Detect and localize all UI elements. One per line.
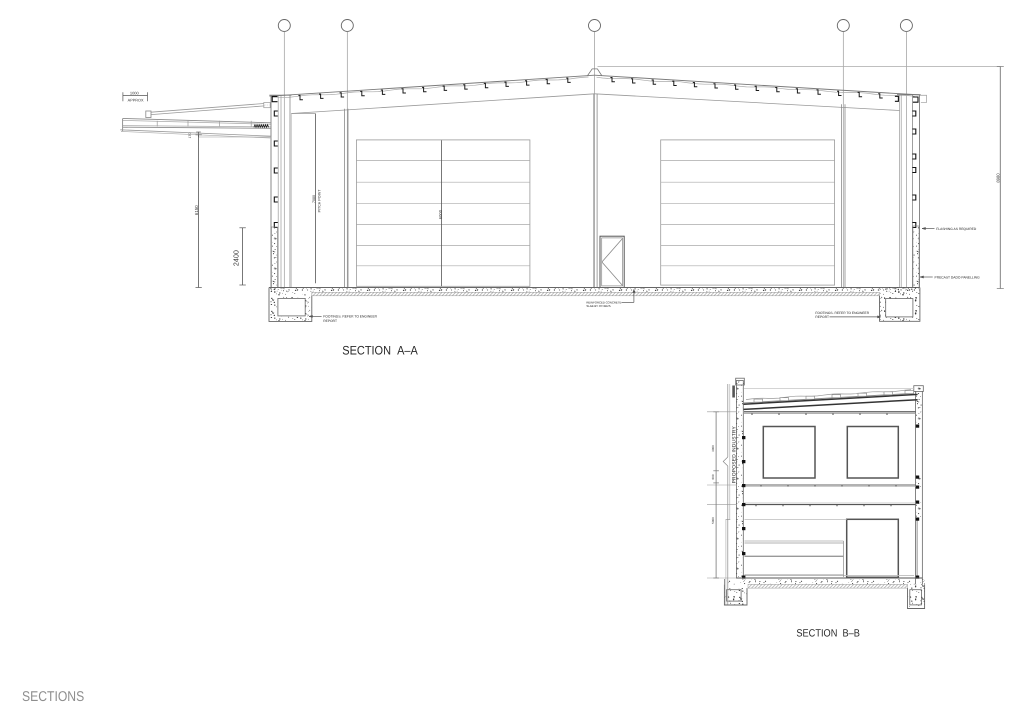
svg-text:3000: 3000 xyxy=(711,445,715,452)
svg-text:6000: 6000 xyxy=(438,209,443,219)
svg-text:1000: 1000 xyxy=(130,91,140,96)
svg-text:170: 170 xyxy=(188,133,192,139)
svg-text:7080: 7080 xyxy=(312,195,316,203)
svg-text:SECTION B–B: SECTION B–B xyxy=(796,628,860,640)
svg-text:2400: 2400 xyxy=(232,250,241,266)
svg-text:5000: 5000 xyxy=(711,517,715,524)
svg-text:SLAB BY OTHERS.: SLAB BY OTHERS. xyxy=(586,304,611,308)
svg-text:SECTION A–A: SECTION A–A xyxy=(342,344,418,358)
svg-text:PROPOSED INDUSTRY: PROPOSED INDUSTRY xyxy=(731,425,737,483)
svg-text:REPORT: REPORT xyxy=(323,319,337,323)
svg-text:PITCH POINT: PITCH POINT xyxy=(317,189,321,213)
svg-text:800: 800 xyxy=(711,474,715,479)
svg-text:PRECAST DADO PANELLING: PRECAST DADO PANELLING xyxy=(935,276,981,280)
svg-text:8980: 8980 xyxy=(996,173,1001,183)
svg-text:6150: 6150 xyxy=(194,205,199,215)
svg-text:REPORT: REPORT xyxy=(815,315,829,319)
svg-text:SECTIONS: SECTIONS xyxy=(22,689,84,705)
svg-text:FLASHING AS REQUIRED: FLASHING AS REQUIRED xyxy=(936,227,977,231)
svg-text:APPROX: APPROX xyxy=(128,99,144,103)
